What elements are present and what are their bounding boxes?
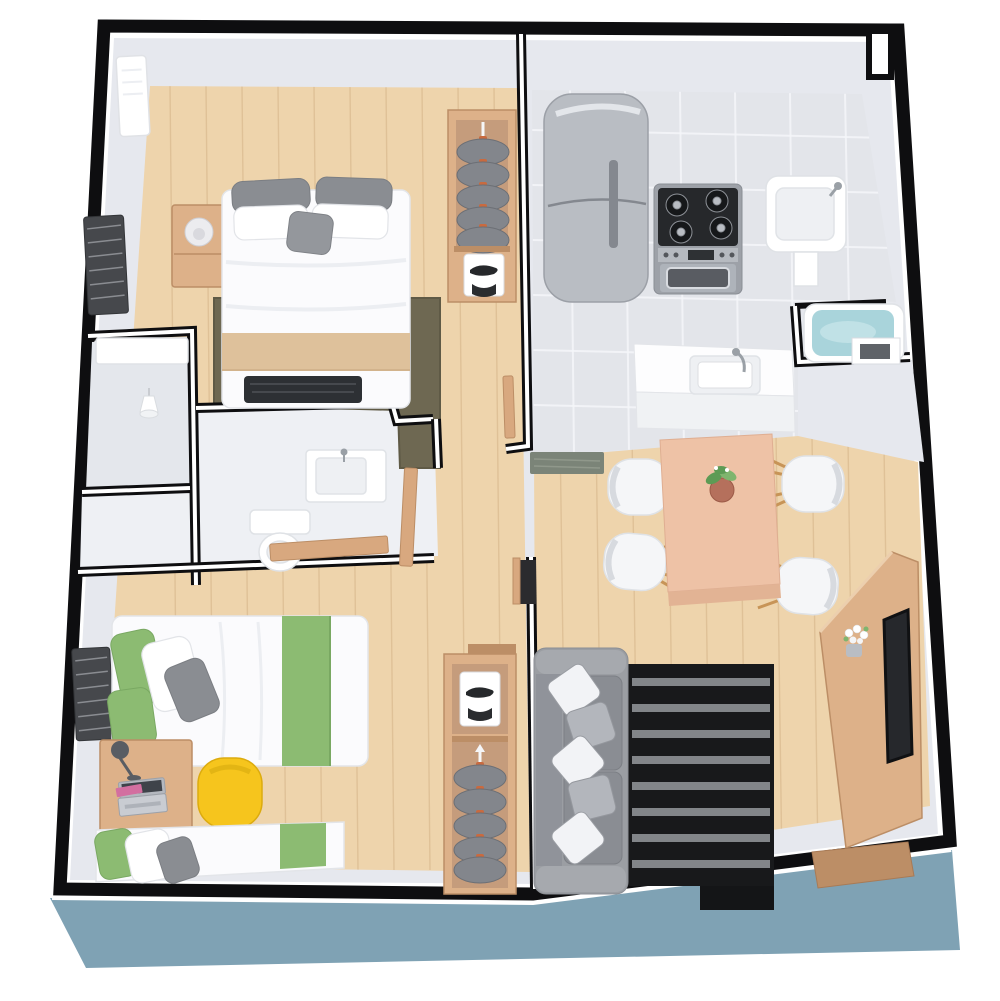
tv-screen (884, 610, 912, 762)
second-bedroom (72, 616, 516, 894)
wall-pilaster-top (872, 34, 888, 74)
oven-window (667, 268, 729, 288)
living-door-opening (520, 560, 536, 604)
wardrobe-shelf (454, 246, 510, 252)
sofa (534, 648, 628, 894)
island-counter (634, 344, 795, 432)
green-runner (280, 823, 326, 869)
refrigerator (544, 94, 648, 302)
wall-bathroom-east (436, 419, 438, 468)
rug-tab (700, 886, 774, 910)
dark-folded-throw (244, 376, 362, 403)
floorplan-canvas: Isometric 3D dollhouse-style floor plan … (0, 0, 1000, 1001)
green-runner (282, 616, 330, 766)
shower-ledge (96, 338, 188, 364)
air-conditioner (116, 55, 150, 136)
living-door-jamb (513, 558, 520, 604)
range-display (688, 250, 714, 260)
kitchen-doormat (530, 452, 604, 474)
bathtub (804, 304, 904, 364)
window-blinds (83, 215, 128, 315)
kitchen-door-leaf (503, 376, 515, 438)
sink-pedestal (794, 252, 818, 286)
dining-table (660, 434, 781, 606)
sneaker-shirt-2 (460, 672, 500, 726)
closet-2 (444, 644, 516, 894)
vanity-sink (306, 449, 386, 503)
accent-cushion (286, 210, 335, 255)
floorplan-stage: Isometric 3D dollhouse-style floor plan … (0, 0, 1000, 1001)
sneaker-shirt (464, 254, 504, 297)
study-desk (100, 740, 192, 836)
laptop (116, 778, 167, 817)
beige-bed-runner (222, 333, 410, 370)
striped-rug (628, 664, 774, 910)
nightstand (172, 205, 226, 287)
fridge-handle (609, 160, 618, 248)
closet-divider (452, 736, 508, 742)
double-bed (222, 177, 410, 408)
gas-range (654, 184, 742, 294)
master-wardrobe (448, 110, 516, 302)
sofa-arm (536, 866, 626, 892)
window-blinds-2 (72, 647, 115, 741)
